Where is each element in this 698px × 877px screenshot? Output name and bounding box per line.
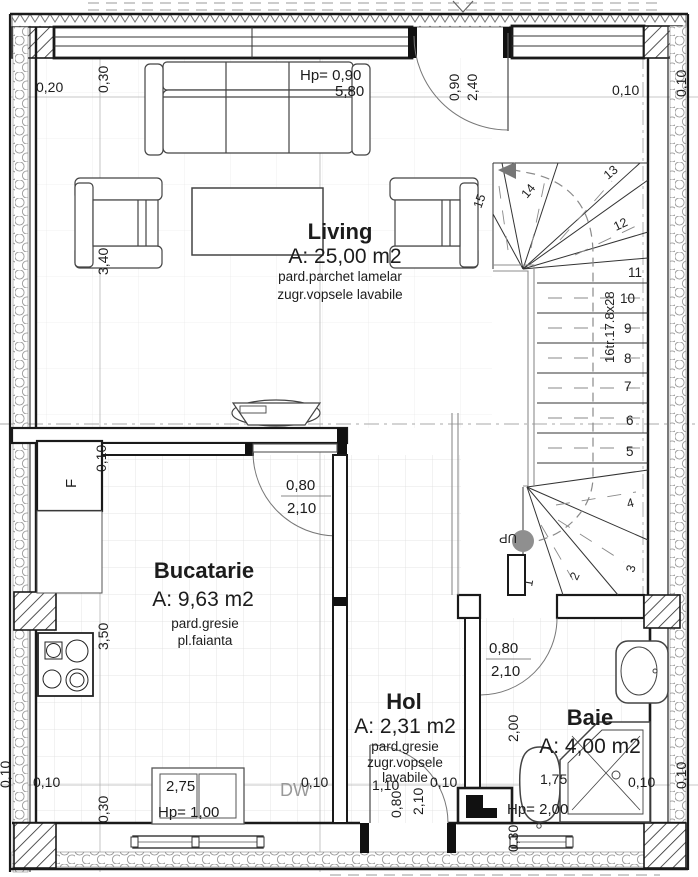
front-door-jamb-left (360, 823, 369, 853)
stair-step-9: 9 (624, 321, 632, 336)
armchair-right (390, 178, 478, 268)
room-area-hol: A: 2,31 m2 (354, 715, 456, 738)
stair-up-label: UP (499, 531, 517, 546)
stair-step-4: 4 (625, 496, 635, 511)
dim-350: 3,50 (95, 623, 111, 650)
bath-window-hp: Hp= 2,00 (507, 801, 568, 818)
dim-010-bath: 0,10 (628, 774, 655, 790)
room-label-hol: Hol (386, 689, 421, 714)
stair-start-stub (508, 555, 525, 595)
fridge-label: F (63, 479, 80, 488)
kitchen-door-width: 0,80 (286, 477, 315, 494)
dim-340: 3,40 (95, 248, 111, 275)
room-finish2-living: zugr.vopsele lavabile (277, 287, 402, 302)
stair-step-6: 6 (626, 413, 634, 428)
stair-walkline (498, 162, 593, 552)
dim-020: 0,20 (36, 79, 63, 95)
right-wall (648, 14, 688, 870)
bottom-left-pier (14, 823, 56, 868)
stair-step-7: 7 (624, 379, 632, 394)
stair-step-11: 11 (628, 265, 642, 280)
left-mid-pier (14, 592, 56, 630)
kitchen-door-height: 2,10 (287, 500, 316, 517)
bath-sink (616, 641, 668, 703)
room-finish1-hol: pard.gresie (371, 739, 439, 754)
room-finish2-kitchen: pl.faianta (178, 633, 233, 648)
stair-step-1: 1 (521, 578, 536, 587)
stair-count-label: 16tr.17.8x28 (602, 291, 617, 363)
room-area-bath: A: 4,00 m2 (539, 735, 641, 758)
room-label-living: Living (308, 219, 373, 244)
stove (38, 633, 93, 696)
front-door-jamb-right (447, 823, 456, 853)
room-finish1-living: pard.parchet lamelar (278, 269, 402, 284)
walkline-arrow (498, 162, 516, 179)
top-wall (10, 14, 688, 58)
entry-door-width: 0,90 (446, 74, 462, 101)
dim-010-bottom-left: 0,10 (33, 774, 60, 790)
stair-step-13: 13 (601, 163, 621, 183)
living-window (54, 27, 412, 58)
dim-110: 1,10 (372, 777, 399, 793)
tv-unit (232, 400, 320, 426)
room-area-kitchen: A: 9,63 m2 (152, 588, 254, 611)
top-right-window (512, 26, 644, 58)
dim-030-bath: 0,30 (505, 825, 521, 852)
stair-corner-pier (644, 595, 680, 628)
room-finish2-hol: zugr.vopsele (367, 755, 443, 770)
room-area-living: A: 25,00 m2 (288, 245, 401, 268)
dim-010-hol-right: 0,10 (430, 774, 457, 790)
stair-step-3: 3 (623, 563, 638, 573)
dim-010-rightwall: 0,10 (673, 70, 689, 97)
stair-step-14: 14 (519, 181, 539, 201)
kitchen-window-width: 2,75 (166, 778, 195, 795)
dim-175: 1,75 (540, 771, 567, 787)
kitchen-counter (37, 511, 102, 593)
dim-010-edge-right: 0,10 (673, 762, 689, 789)
stair-step-5: 5 (626, 444, 634, 459)
kitchen-window-hp: Hp= 1,00 (158, 804, 219, 821)
living-window-hp: Hp= 0,90 (300, 67, 361, 84)
front-door-width: 0,80 (388, 791, 404, 818)
room-finish1-kitchen: pard.gresie (171, 616, 239, 631)
dim-010-edge-left: 0,10 (0, 761, 13, 788)
stair-step-10: 10 (620, 291, 635, 306)
living-window-width: 5,80 (335, 83, 364, 100)
bath-door-width: 0,80 (489, 640, 518, 657)
kitchen-hol-wall (333, 455, 347, 823)
room-label-bath: Baie (567, 705, 613, 730)
dim-030-bottom: 0,30 (95, 796, 111, 823)
stair-step-8: 8 (624, 351, 632, 366)
dim-010-kitchen: 0,10 (93, 445, 109, 472)
stair-step-2: 2 (567, 570, 583, 582)
armchair-left (75, 178, 162, 268)
floor-plan-svg: 0,20 0,30 Hp= 0,90 5,80 0,90 2,40 0,10 0… (0, 0, 698, 877)
floor-plan-page: 0,20 0,30 Hp= 0,90 5,80 0,90 2,40 0,10 0… (0, 0, 698, 877)
stair-step-12: 12 (611, 215, 630, 234)
entry-door-height: 2,40 (464, 74, 480, 101)
bath-door-height: 2,10 (491, 663, 520, 680)
bottom-right-pier (644, 823, 686, 868)
front-door-height: 2,10 (410, 788, 426, 815)
dim-030-top: 0,30 (95, 66, 111, 93)
bottom-wall (10, 823, 688, 869)
dim-010-hol-left: 0,10 (301, 774, 328, 790)
dim-200: 2,00 (505, 715, 521, 742)
dim-010-topright: 0,10 (612, 82, 639, 98)
room-label-kitchen: Bucatarie (154, 558, 254, 583)
